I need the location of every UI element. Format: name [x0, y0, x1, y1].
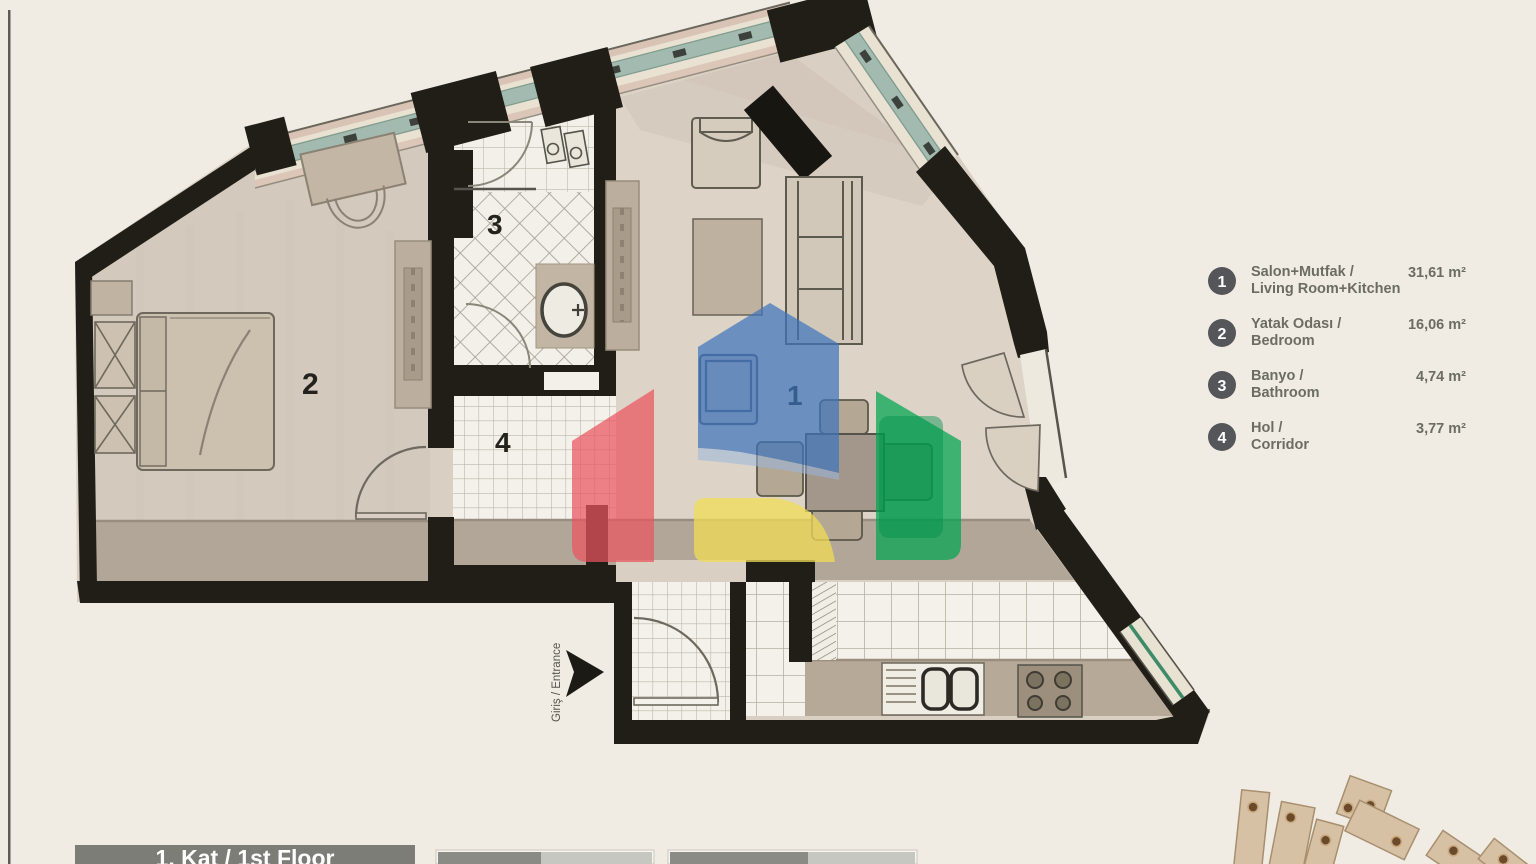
svg-text:Yatak Odası /: Yatak Odası / [1251, 316, 1341, 332]
svg-text:2: 2 [302, 368, 319, 401]
svg-text:Hol /: Hol / [1251, 420, 1282, 436]
svg-text:3: 3 [1218, 378, 1227, 395]
svg-text:Corridor: Corridor [1251, 437, 1309, 453]
svg-text:4: 4 [495, 427, 511, 458]
svg-text:4,74 m²: 4,74 m² [1416, 369, 1466, 385]
svg-text:Giriş / Entrance: Giriş / Entrance [551, 643, 563, 722]
svg-text:1: 1 [1218, 274, 1227, 291]
svg-text:3,77 m²: 3,77 m² [1416, 421, 1466, 437]
svg-text:4: 4 [1218, 430, 1227, 447]
svg-text:Living Room+Kitchen: Living Room+Kitchen [1251, 281, 1400, 297]
svg-text:Bathroom: Bathroom [1251, 385, 1319, 401]
svg-text:16,06 m²: 16,06 m² [1408, 317, 1466, 333]
svg-text:Banyo /: Banyo / [1251, 368, 1303, 384]
svg-text:1. Kat / 1st Floor: 1. Kat / 1st Floor [156, 845, 335, 864]
svg-text:Salon+Mutfak /: Salon+Mutfak / [1251, 264, 1354, 280]
svg-text:31,61 m²: 31,61 m² [1408, 265, 1466, 281]
svg-text:2: 2 [1218, 326, 1227, 343]
svg-text:Bedroom: Bedroom [1251, 333, 1315, 349]
svg-text:3: 3 [487, 209, 503, 240]
